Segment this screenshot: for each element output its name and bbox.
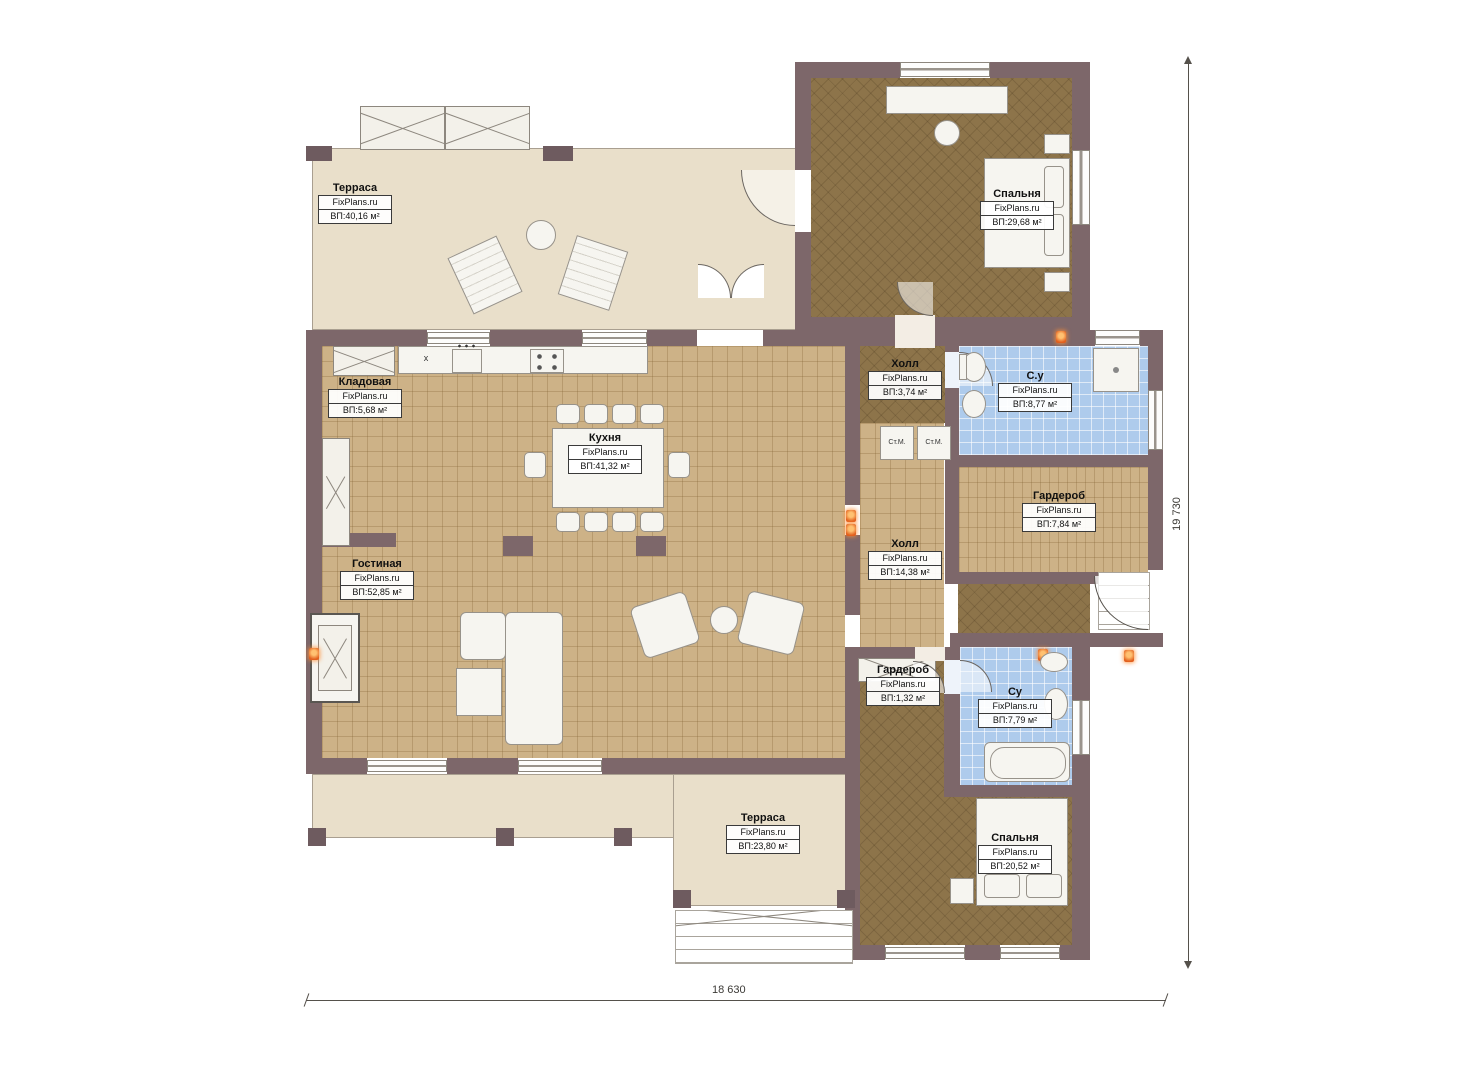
washing-machine-label: Ст.М. xyxy=(880,439,914,446)
room-label-living: Гостиная FixPlans.ru ВП:52,85 м² xyxy=(340,558,414,600)
room-area: ВП:29,68 м² xyxy=(980,216,1054,230)
wall xyxy=(845,345,860,505)
wall xyxy=(1072,225,1090,346)
watermark: FixPlans.ru xyxy=(998,383,1072,398)
wall xyxy=(795,232,811,317)
chair xyxy=(584,512,608,532)
radiator-marker xyxy=(846,524,856,536)
door-gap xyxy=(915,647,945,661)
wall-stub xyxy=(306,533,396,547)
wall xyxy=(306,330,427,346)
window xyxy=(900,62,990,77)
wall xyxy=(1148,450,1163,570)
door-gap xyxy=(895,315,935,348)
wall xyxy=(965,945,1000,960)
chair xyxy=(524,452,546,478)
watermark: FixPlans.ru xyxy=(866,677,940,692)
room-title: Холл xyxy=(891,358,919,371)
watermark: FixPlans.ru xyxy=(340,571,414,586)
wall xyxy=(447,758,518,774)
bathtub-inner xyxy=(990,747,1066,779)
dimension-line-right xyxy=(1188,62,1189,965)
room-area: ВП:7,79 м² xyxy=(978,714,1052,728)
sink xyxy=(962,390,986,418)
room-label-terrace-bottom: Терраса FixPlans.ru ВП:23,80 м² xyxy=(726,812,800,854)
nightstand xyxy=(1044,272,1070,292)
toilet-tank xyxy=(959,354,967,380)
fireplace-inner xyxy=(318,625,352,691)
room-area: ВП:23,80 м² xyxy=(726,840,800,854)
watermark: FixPlans.ru xyxy=(978,699,1052,714)
room-label-terrace-top: Терраса FixPlans.ru ВП:40,16 м² xyxy=(318,182,392,224)
radiator-marker xyxy=(1124,650,1134,662)
watermark: FixPlans.ru xyxy=(978,845,1052,860)
room-area: ВП:5,68 м² xyxy=(328,404,402,418)
room-title: Холл xyxy=(891,538,919,551)
faucet-icon xyxy=(456,343,478,349)
wall xyxy=(647,330,697,346)
room-title: Терраса xyxy=(741,812,785,825)
window xyxy=(1072,700,1090,755)
burners-icon xyxy=(532,351,562,371)
washing-machine-label: Ст.М. xyxy=(917,439,951,446)
watermark: FixPlans.ru xyxy=(726,825,800,840)
radiator-marker xyxy=(1056,331,1066,343)
wall xyxy=(935,330,1095,346)
room-title: Кладовая xyxy=(339,376,392,389)
chair xyxy=(668,452,690,478)
wall xyxy=(944,785,1090,797)
room-area: ВП:3,74 м² xyxy=(868,386,942,400)
window xyxy=(582,332,647,344)
room-title: Гардероб xyxy=(877,664,929,677)
room-area: ВП:8,77 м² xyxy=(998,398,1072,412)
room-label-wardrobe-small: Гардероб FixPlans.ru ВП:1,32 м² xyxy=(866,664,940,706)
window xyxy=(367,760,447,772)
desk xyxy=(886,86,1008,114)
wall xyxy=(795,317,895,331)
wall xyxy=(763,330,811,346)
room-area: ВП:40,16 м² xyxy=(318,210,392,224)
chair xyxy=(612,512,636,532)
canopy xyxy=(445,106,530,150)
nightstand xyxy=(1044,134,1070,154)
terrace-post xyxy=(308,828,326,846)
terrace-post xyxy=(496,828,514,846)
room-title: Гардероб xyxy=(1033,490,1085,503)
room-area: ВП:14,38 м² xyxy=(868,566,942,580)
floor-plan: x Ст.М. Ст.М. xyxy=(0,0,1474,1080)
watermark: FixPlans.ru xyxy=(980,201,1054,216)
coffee-table xyxy=(456,668,502,716)
pillow xyxy=(984,874,1020,898)
rail-stub xyxy=(306,146,332,161)
wall xyxy=(306,758,367,774)
wall xyxy=(1140,330,1163,346)
window xyxy=(518,760,602,772)
room-title: Спальня xyxy=(993,188,1041,201)
sofa-chaise xyxy=(460,612,506,660)
room-title: Кухня xyxy=(589,432,621,445)
pantry-shelf xyxy=(333,346,395,376)
room-area: ВП:52,85 м² xyxy=(340,586,414,600)
watermark: FixPlans.ru xyxy=(328,389,402,404)
column xyxy=(503,536,533,556)
terrace-steps xyxy=(675,910,853,964)
door-gap xyxy=(945,352,959,388)
door-gap xyxy=(944,660,960,694)
room-area: ВП:41,32 м² xyxy=(568,460,642,474)
room-area: ВП:20,52 м² xyxy=(978,860,1052,874)
window xyxy=(885,947,965,959)
chair xyxy=(556,404,580,424)
sink xyxy=(1040,652,1068,672)
room-title: С.у xyxy=(1026,370,1043,383)
watermark: FixPlans.ru xyxy=(868,551,942,566)
watermark: FixPlans.ru xyxy=(318,195,392,210)
wall xyxy=(795,62,811,170)
watermark: FixPlans.ru xyxy=(1022,503,1096,518)
window xyxy=(1148,390,1163,450)
room-title: Гостиная xyxy=(352,558,402,571)
room-label-hall-small: Холл FixPlans.ru ВП:3,74 м² xyxy=(868,358,942,400)
nightstand xyxy=(950,878,974,904)
room-label-bedroom-top: Спальня FixPlans.ru ВП:29,68 м² xyxy=(980,188,1054,230)
pantry-shelf xyxy=(322,438,350,546)
room-label-bedroom-bottom: Спальня FixPlans.ru ВП:20,52 м² xyxy=(978,832,1052,874)
terrace-post xyxy=(673,890,691,908)
pillow xyxy=(1026,874,1062,898)
canopy xyxy=(360,106,445,150)
room-title: Спальня xyxy=(991,832,1039,845)
wall xyxy=(1148,346,1163,390)
watermark: FixPlans.ru xyxy=(568,445,642,460)
column xyxy=(636,536,666,556)
room-title: Су xyxy=(1008,686,1022,699)
window xyxy=(1095,330,1140,345)
room-label-bath-bottom: Су FixPlans.ru ВП:7,79 м² xyxy=(978,686,1052,728)
wall xyxy=(1072,755,1090,945)
radiator-marker xyxy=(846,510,856,522)
terrace-top-floor xyxy=(312,148,800,330)
room-label-hall-main: Холл FixPlans.ru ВП:14,38 м² xyxy=(868,538,942,580)
window xyxy=(1072,150,1090,225)
chair xyxy=(612,404,636,424)
dimension-arrow-up xyxy=(1184,56,1192,64)
room-title: Терраса xyxy=(333,182,377,195)
dimension-line-bottom xyxy=(306,1000,1166,1001)
side-table xyxy=(710,606,738,634)
wall xyxy=(1072,647,1090,700)
dimension-height-label: 19 730 xyxy=(1171,497,1183,531)
wall xyxy=(306,330,322,774)
room-label-wardrobe-right: Гардероб FixPlans.ru ВП:7,84 м² xyxy=(1022,490,1096,532)
chair xyxy=(640,512,664,532)
dimension-width-label: 18 630 xyxy=(712,984,746,996)
room-area: ВП:1,32 м² xyxy=(866,692,940,706)
dimension-arrow-down xyxy=(1184,961,1192,969)
chair xyxy=(556,512,580,532)
room-label-pantry: Кладовая FixPlans.ru ВП:5,68 м² xyxy=(328,376,402,418)
wall xyxy=(958,455,1148,467)
chair xyxy=(640,404,664,424)
wall xyxy=(602,758,860,774)
chair xyxy=(584,404,608,424)
wall xyxy=(935,317,1072,331)
rail-stub xyxy=(543,146,573,161)
wall xyxy=(950,633,1163,647)
wall xyxy=(1060,945,1090,960)
window xyxy=(1000,947,1060,959)
door-gap xyxy=(795,170,811,232)
room-label-bath-top: С.у FixPlans.ru ВП:8,77 м² xyxy=(998,370,1072,412)
watermark: FixPlans.ru xyxy=(868,371,942,386)
wall xyxy=(490,330,582,346)
terrace-post xyxy=(614,828,632,846)
wall xyxy=(845,535,860,615)
terrace-table xyxy=(526,220,556,250)
room-area: ВП:7,84 м² xyxy=(1022,518,1096,532)
wall xyxy=(811,330,895,346)
radiator-marker xyxy=(309,648,319,660)
corridor-floor xyxy=(958,584,1090,633)
desk-chair xyxy=(934,120,960,146)
counter-mark: x xyxy=(420,354,432,363)
room-label-kitchen: Кухня FixPlans.ru ВП:41,32 м² xyxy=(568,432,642,474)
shower-drain xyxy=(1113,367,1119,373)
kitchen-counter xyxy=(398,346,648,374)
sofa xyxy=(505,612,563,745)
wall xyxy=(1072,62,1090,150)
terrace-post xyxy=(837,890,855,908)
kitchen-sink xyxy=(452,349,482,373)
